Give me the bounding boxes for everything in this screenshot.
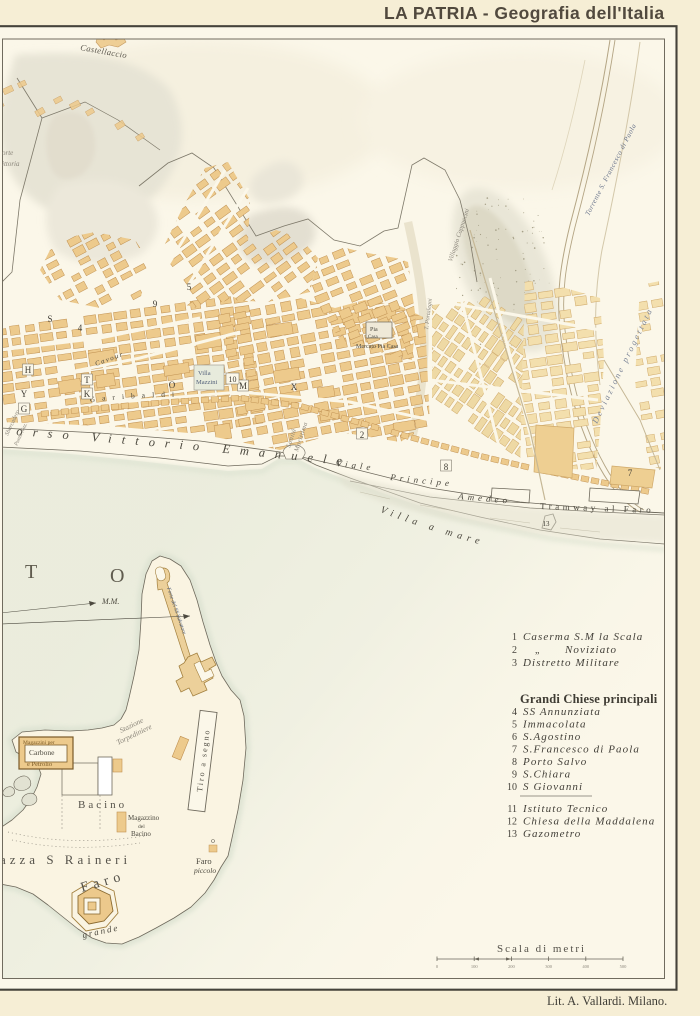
- svg-text:LA PATRIA - Geografia dell'Ita: LA PATRIA - Geografia dell'Italia: [384, 3, 665, 23]
- svg-text:6: 6: [512, 732, 517, 743]
- svg-text:9: 9: [153, 299, 158, 309]
- svg-text:9: 9: [512, 770, 517, 781]
- svg-text:SS Annunziata: SS Annunziata: [523, 706, 601, 718]
- svg-text:ittoria: ittoria: [2, 160, 20, 168]
- svg-text:Magazzino: Magazzino: [128, 814, 160, 822]
- svg-text:Y: Y: [21, 389, 28, 399]
- svg-text:O: O: [169, 380, 176, 390]
- svg-text:M: M: [239, 381, 247, 391]
- svg-text:4: 4: [512, 707, 517, 718]
- svg-text:Distretto Militare: Distretto Militare: [522, 657, 620, 669]
- svg-text:Villa: Villa: [198, 370, 211, 377]
- svg-text:Chiesa della Maddalena: Chiesa della Maddalena: [523, 816, 655, 828]
- svg-text:200: 200: [508, 964, 516, 969]
- svg-text:Magazzini per: Magazzini per: [23, 740, 55, 746]
- svg-text:10: 10: [507, 782, 517, 793]
- svg-text:X: X: [291, 382, 298, 392]
- svg-text:S Giovanni: S Giovanni: [523, 781, 583, 793]
- svg-text:5: 5: [512, 720, 517, 731]
- svg-text:13: 13: [543, 520, 551, 528]
- svg-text:4: 4: [78, 323, 83, 333]
- svg-text:Carbone: Carbone: [29, 748, 55, 757]
- svg-text:Lit. A. Vallardi. Milano.: Lit. A. Vallardi. Milano.: [547, 994, 667, 1008]
- svg-text:3: 3: [512, 658, 517, 669]
- svg-text:S.Chiara: S.Chiara: [523, 769, 571, 781]
- svg-text:S.Agostino: S.Agostino: [523, 731, 581, 743]
- svg-text:M.M.: M.M.: [101, 597, 119, 606]
- svg-text:T: T: [84, 375, 90, 385]
- svg-text:2: 2: [512, 645, 517, 656]
- svg-text:7: 7: [628, 468, 633, 478]
- svg-text:1: 1: [512, 632, 517, 643]
- svg-text:Istituto Tecnico: Istituto Tecnico: [522, 803, 608, 815]
- svg-text:Faro: Faro: [196, 856, 212, 866]
- svg-text:500: 500: [620, 964, 628, 969]
- svg-text:Grandi Chiese principali: Grandi Chiese principali: [520, 692, 658, 706]
- svg-text:azza S Raineri: azza S Raineri: [0, 852, 131, 867]
- svg-text:Scala di metri: Scala di metri: [497, 943, 586, 955]
- svg-text:S: S: [47, 314, 52, 324]
- svg-text:„: „: [535, 645, 539, 656]
- svg-text:Bacino: Bacino: [78, 799, 127, 811]
- svg-text:400: 400: [582, 964, 590, 969]
- svg-text:piccolo: piccolo: [193, 866, 216, 875]
- svg-text:11: 11: [507, 804, 517, 815]
- svg-text:2: 2: [360, 430, 365, 440]
- svg-text:Noviziato: Noviziato: [564, 644, 617, 656]
- svg-text:orte: orte: [2, 149, 13, 157]
- svg-text:K: K: [84, 389, 91, 399]
- svg-text:Mazzini: Mazzini: [196, 379, 217, 386]
- svg-text:Gazometro: Gazometro: [523, 828, 581, 840]
- svg-text:S.Francesco di Paola: S.Francesco di Paola: [523, 744, 640, 756]
- svg-text:O: O: [110, 565, 124, 587]
- svg-text:8: 8: [512, 757, 517, 768]
- svg-text:300: 300: [545, 964, 553, 969]
- svg-text:Bacino: Bacino: [131, 830, 151, 838]
- svg-text:8: 8: [444, 462, 449, 472]
- svg-text:Mercato Pia Casa: Mercato Pia Casa: [356, 344, 399, 350]
- svg-text:Porto Salvo: Porto Salvo: [522, 756, 587, 768]
- svg-text:e Petrolio: e Petrolio: [27, 761, 52, 768]
- svg-text:G: G: [21, 404, 28, 414]
- svg-text:7: 7: [512, 745, 517, 756]
- svg-text:13: 13: [507, 829, 517, 840]
- svg-text:5: 5: [187, 282, 192, 292]
- svg-text:Immacolata: Immacolata: [522, 719, 587, 731]
- svg-text:10: 10: [229, 375, 237, 384]
- svg-text:12: 12: [507, 817, 517, 828]
- svg-text:T: T: [25, 561, 37, 583]
- svg-text:H: H: [25, 365, 32, 375]
- svg-text:Caserma S.M la Scala: Caserma S.M la Scala: [523, 631, 643, 643]
- svg-text:100: 100: [471, 964, 479, 969]
- svg-text:Pia: Pia: [370, 327, 378, 333]
- svg-text:Casa: Casa: [368, 335, 379, 340]
